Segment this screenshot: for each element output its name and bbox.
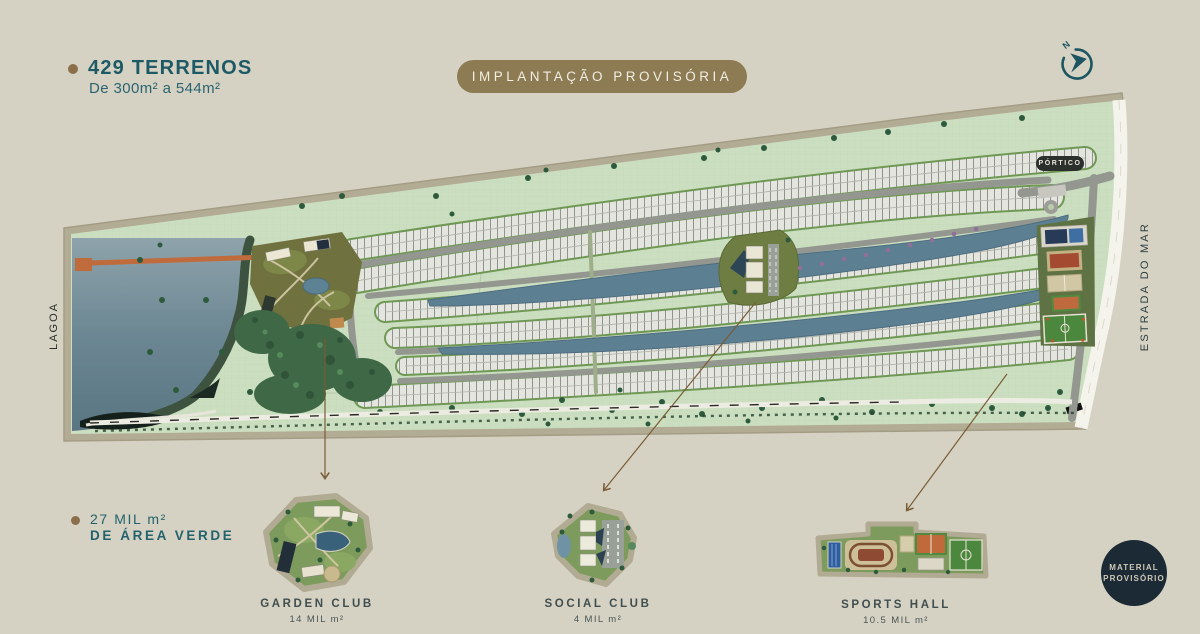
portico-label: PÓRTICO <box>1038 160 1081 167</box>
header-bullet <box>68 64 78 74</box>
garden-club-area-size: 14 MIL m² <box>232 614 402 625</box>
green-area-size: 27 MIL m² <box>90 511 167 527</box>
social-club-island <box>719 230 799 305</box>
stamp-line2: PROVISÓRIO <box>1103 573 1165 584</box>
sports-hall-name: SPORTS HALL <box>811 599 981 611</box>
sports-hall-area-size: 10.5 MIL m² <box>811 615 981 626</box>
sports-hall-callout: SPORTS HALL 10.5 MIL m² <box>811 599 981 626</box>
sports-complex-area <box>1034 217 1101 350</box>
garden-club-callout: GARDEN CLUB 14 MIL m² <box>232 598 402 625</box>
provisional-plan-banner: IMPLANTAÇÃO PROVISÓRIA <box>457 60 747 93</box>
banner-label: IMPLANTAÇÃO PROVISÓRIA <box>472 69 733 84</box>
social-club-name: SOCIAL CLUB <box>513 598 683 610</box>
sports-hall-diagram <box>818 524 986 576</box>
lots-size-subtitle: De 300m² a 544m² <box>89 80 220 97</box>
green-area-label: DE ÁREA VERDE <box>90 528 234 543</box>
masterplan-page: 429 TERRENOS De 300m² a 544m² IMPLANTAÇÃ… <box>0 0 1200 634</box>
garden-club-diagram <box>266 496 370 589</box>
garden-club-name: GARDEN CLUB <box>232 598 402 610</box>
portico-badge: PÓRTICO <box>1036 156 1084 171</box>
green-note-bullet <box>71 516 80 525</box>
estrada-do-mar-label: ESTRADA DO MAR <box>1139 222 1151 351</box>
social-club-diagram <box>554 506 636 584</box>
compass-icon <box>1054 38 1100 84</box>
social-club-callout: SOCIAL CLUB 4 MIL m² <box>513 598 683 625</box>
provisional-material-stamp: MATERIAL PROVISÓRIO <box>1101 540 1167 606</box>
stamp-line1: MATERIAL <box>1109 562 1159 573</box>
lots-count-title: 429 TERRENOS <box>88 57 252 80</box>
lagoa-label: LAGOA <box>48 302 60 350</box>
social-club-area-size: 4 MIL m² <box>513 614 683 625</box>
